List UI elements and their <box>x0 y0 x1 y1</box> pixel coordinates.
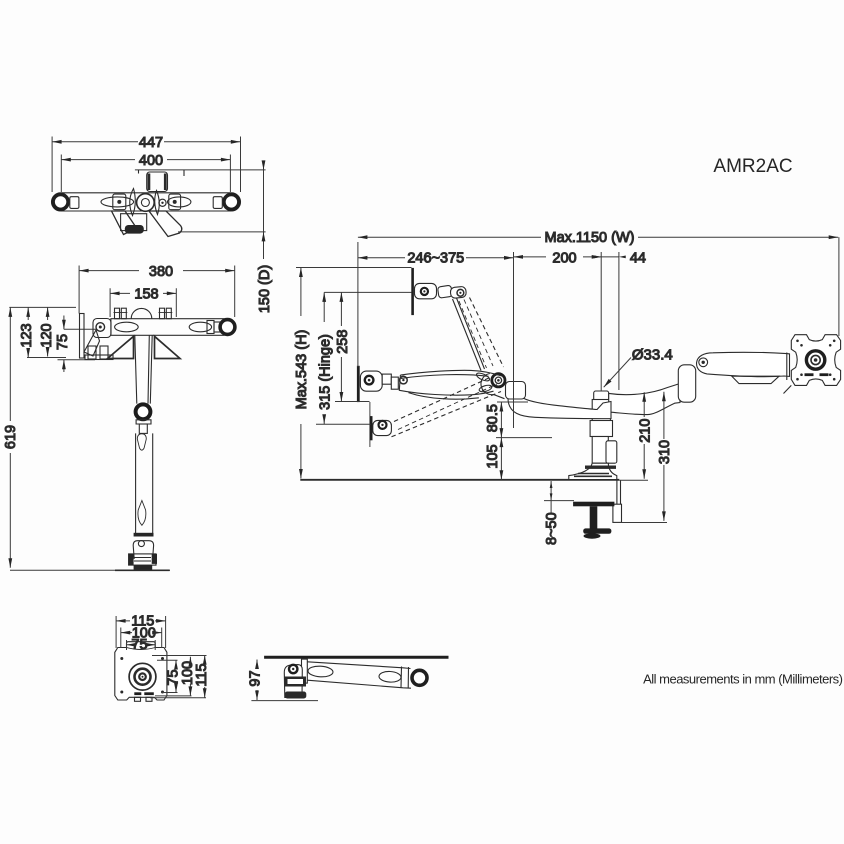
svg-text:158: 158 <box>134 287 158 303</box>
svg-text:200: 200 <box>552 250 576 266</box>
svg-text:Max.543 (H): Max.543 (H) <box>294 330 310 410</box>
svg-text:258: 258 <box>335 330 351 354</box>
svg-text:315 (Hinge): 315 (Hinge) <box>318 334 334 410</box>
svg-text:Max.1150 (W): Max.1150 (W) <box>545 230 635 246</box>
svg-text:75: 75 <box>131 637 147 653</box>
svg-text:380: 380 <box>149 264 173 280</box>
svg-text:AMR2AC: AMR2AC <box>713 156 792 177</box>
svg-text:44: 44 <box>630 250 646 266</box>
svg-text:115: 115 <box>194 663 210 686</box>
svg-text:447: 447 <box>139 135 163 151</box>
svg-text:150 (D): 150 (D) <box>257 265 273 313</box>
svg-text:310: 310 <box>657 440 673 464</box>
svg-text:8~50: 8~50 <box>544 512 560 545</box>
svg-text:75: 75 <box>55 334 71 350</box>
svg-text:Ø33.4: Ø33.4 <box>632 347 673 364</box>
svg-text:210: 210 <box>638 419 654 443</box>
svg-text:97: 97 <box>247 670 263 686</box>
svg-text:123: 123 <box>19 323 35 347</box>
svg-text:105: 105 <box>485 444 501 468</box>
svg-text:All measurements in mm (Millim: All measurements in mm (Millimeters) <box>643 672 843 687</box>
svg-text:400: 400 <box>139 153 163 169</box>
svg-text:619: 619 <box>3 425 19 449</box>
svg-text:120: 120 <box>39 323 55 347</box>
svg-text:246~375: 246~375 <box>407 250 464 266</box>
svg-text:80.5: 80.5 <box>485 404 501 432</box>
